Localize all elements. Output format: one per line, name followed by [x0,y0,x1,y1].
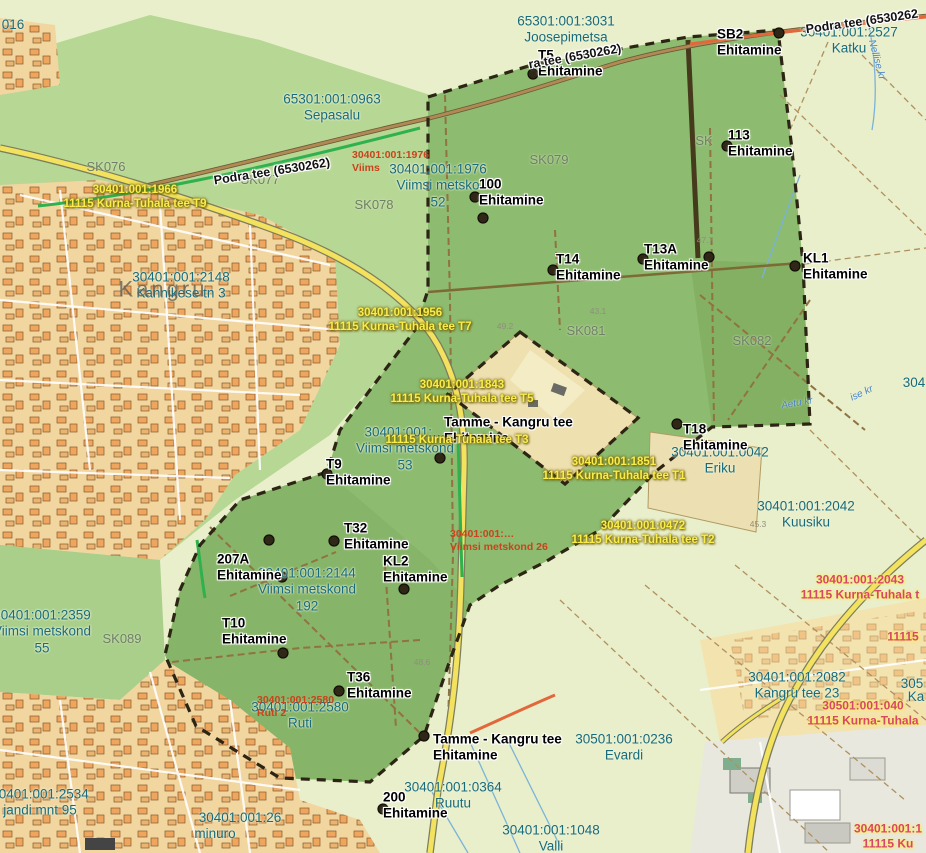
construction-point-label: T32 Ehitamine [344,521,409,554]
map-label: 30501:001:0236 Evardi [575,732,673,765]
map-label: 30401:001:0364 Ruutu [404,780,502,813]
map-label: Nellise kr [865,39,887,82]
construction-point-label: KL2 Ehitamine [383,554,448,587]
map-labels-layer: 01665301:001:3031 Joosepimetsa30401:001:… [0,0,926,853]
construction-point-label: T13A Ehitamine [644,242,709,275]
map-label: 30401:001:2043 11115 Kurna-Tuhala t [801,572,920,601]
map-label: 30401:001:1966 11115 Kurna-Tuhala tee T9 [64,183,207,211]
map-label: 30401:001:0472 11115 Kurna-Tuhala tee T2 [572,519,715,547]
construction-point-label: 207A Ehitamine [217,552,282,585]
construction-point-label: Tamme - Kangru tee Ehitamine [444,415,573,448]
map-label: 304 [903,375,926,391]
construction-point-label: T14 Ehitamine [556,252,621,285]
map-label: SK082 [732,333,771,349]
construction-point-label: 200 Ehitamine [383,790,448,823]
map-label: SK081 [566,323,605,339]
map-label: 016 [2,17,25,33]
construction-point-label: T9 Ehitamine [326,457,391,490]
map-label: 30401:001:2082 Kangru tee 23 [748,670,846,703]
map-label: 30401:001:… Viimsi metskond 53 [356,424,454,473]
construction-point-label: 100 Ehitamine [479,177,544,210]
map-label: 30401:001:… Viimsi metskond 26 [450,528,548,554]
map-label: 65301:001:3031 Joosepimetsa [517,14,615,47]
map-label: 11115 [887,630,918,645]
map-label: SK078 [354,197,393,213]
map-label: 30401:001:2042 Kuusiku [757,499,855,532]
map-label: 30401:001:2148 Kannikese tn 3 [132,270,230,303]
map-label: SK076 [86,159,125,175]
map-label: 30401:001:1956 11115 Kurna-Tuhala tee T7 [329,306,472,334]
construction-point-label: SB2 Ehitamine [717,27,782,60]
map-label: 30401:001:2527 Katku [800,25,898,58]
map-label: 30401:001:2144 Viimsi metskond 192 [258,565,356,614]
map-label: 49.2 [497,321,514,331]
construction-point-label: T36 Ehitamine [347,670,412,703]
map-label: Kangru [119,277,208,304]
map-label: 30401:001:2534 jandi mnt 95 [0,787,89,820]
map-label: 30401:001:1851 11115 Kurna-Tuhala tee T1 [543,455,686,483]
construction-point-label: KL1 Ehitamine [803,251,868,284]
construction-point-label: Tamme - Kangru tee Ehitamine [433,732,562,765]
map-label: Podra tee (6530262) [213,155,331,188]
construction-point-label: T10 Ehitamine [222,616,287,649]
map-label: 43.1 [590,306,607,316]
map-label: 30401:001:1843 11115 Kurna-Tuhala tee T5 [391,378,534,406]
map-label: 30401:001:26 [199,810,282,826]
map-label: 30401:001:2580 Ruti 2 [257,694,334,720]
construction-point-label: 113 Ehitamine [728,128,793,161]
construction-point-label: T5 Ehitamine [538,48,603,81]
map-label: 30501:001:040 11115 Kurna-Tuhala [807,698,918,727]
map-label: 11115 Kurna-Tuhala tee T3 [386,433,529,447]
map-label: Podra tee (6530262 [805,7,919,38]
map-label: 30401:001:1048 Valli [502,823,600,853]
map-label: 45.3 [750,519,767,529]
map-label: Äetu kr [780,395,813,413]
map-canvas[interactable]: 01665301:001:3031 Joosepimetsa30401:001:… [0,0,926,853]
map-label: 30401:001:2580 Ruti [251,700,349,733]
map-label: 305 [901,676,924,692]
map-label: 30401:001:0042 Eriku [671,445,769,478]
map-label: 48.6 [414,657,431,667]
map-label: 30401:001:2359 Viimsi metskond 55 [0,607,91,656]
map-label: 30401:001:1976 Viimsi metsko 52 [389,161,487,210]
construction-point-label: T18 Ehitamine [683,422,748,455]
map-label: ra tee (6530262) [527,41,622,72]
map-label: SK089 [102,631,141,647]
map-label: minuro [194,826,235,842]
map-label: SK077 [240,172,279,188]
map-label: 30401:001:1976 Viims [352,149,429,175]
map-label: 65301:001:0963 Sepasalu [283,92,381,125]
map-label: ise kr [849,383,876,404]
map-label: 47.7 [697,235,714,245]
map-label: SK [695,133,712,149]
map-label: 30401:001:1 11115 Ku [854,821,922,850]
map-label: SK079 [529,152,568,168]
map-label: Ka [908,689,925,705]
